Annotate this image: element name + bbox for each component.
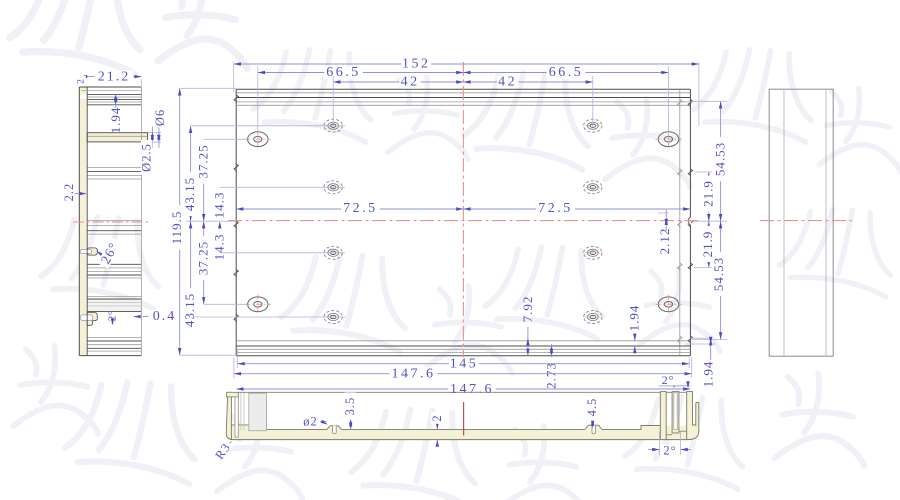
svg-text:72.5: 72.5 (343, 201, 378, 216)
svg-text:1.94: 1.94 (627, 305, 642, 332)
svg-text:72.5: 72.5 (538, 201, 573, 216)
svg-text:145: 145 (450, 356, 479, 371)
svg-text:43.15: 43.15 (182, 293, 197, 327)
svg-text:3.5: 3.5 (343, 397, 357, 416)
svg-text:66.5: 66.5 (326, 65, 361, 80)
svg-text:21.2: 21.2 (98, 69, 131, 84)
svg-text:0.4: 0.4 (153, 309, 177, 324)
svg-text:2.12: 2.12 (657, 228, 672, 255)
svg-text:2: 2 (430, 414, 444, 421)
svg-text:66.5: 66.5 (549, 65, 584, 80)
svg-text:2.73: 2.73 (543, 362, 558, 389)
svg-text:Ø2.5: Ø2.5 (140, 143, 154, 172)
svg-text:7.92: 7.92 (520, 296, 535, 323)
svg-text:1.94: 1.94 (701, 361, 716, 388)
svg-text:54.53: 54.53 (712, 142, 727, 176)
svg-text:2°: 2° (662, 373, 675, 387)
svg-text:21.9: 21.9 (700, 231, 715, 258)
svg-text:4.5: 4.5 (585, 398, 599, 417)
svg-text:152: 152 (402, 57, 431, 72)
svg-text:42: 42 (498, 75, 517, 90)
svg-text:147.6: 147.6 (450, 382, 494, 397)
svg-text:43.15: 43.15 (182, 177, 197, 211)
svg-text:14.3: 14.3 (212, 192, 227, 219)
svg-text:R3: R3 (212, 440, 233, 462)
svg-text:1.94: 1.94 (108, 107, 123, 134)
svg-text:2°: 2° (663, 444, 676, 458)
svg-text:14.3: 14.3 (212, 234, 227, 261)
svg-text:42: 42 (401, 75, 420, 90)
svg-text:37.25: 37.25 (196, 241, 211, 275)
svg-text:119.5: 119.5 (169, 211, 184, 245)
svg-text:2: 2 (77, 78, 87, 84)
svg-text:37.25: 37.25 (196, 144, 211, 178)
svg-text:Ø6: Ø6 (153, 109, 167, 126)
svg-text:147.6: 147.6 (392, 366, 436, 381)
svg-text:ø2: ø2 (303, 415, 318, 429)
svg-text:2.2: 2.2 (62, 183, 76, 202)
svg-text:21.9: 21.9 (701, 180, 716, 207)
